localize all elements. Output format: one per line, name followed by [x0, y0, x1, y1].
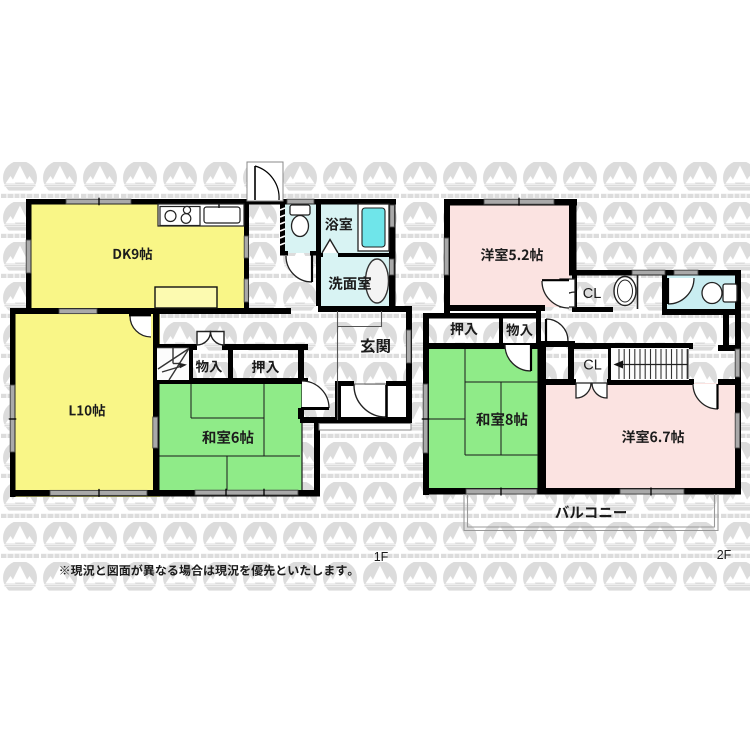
svg-text:2F: 2F	[717, 548, 732, 562]
svg-text:CL: CL	[583, 358, 602, 374]
svg-text:1F: 1F	[374, 550, 389, 564]
svg-text:CL: CL	[583, 286, 602, 302]
